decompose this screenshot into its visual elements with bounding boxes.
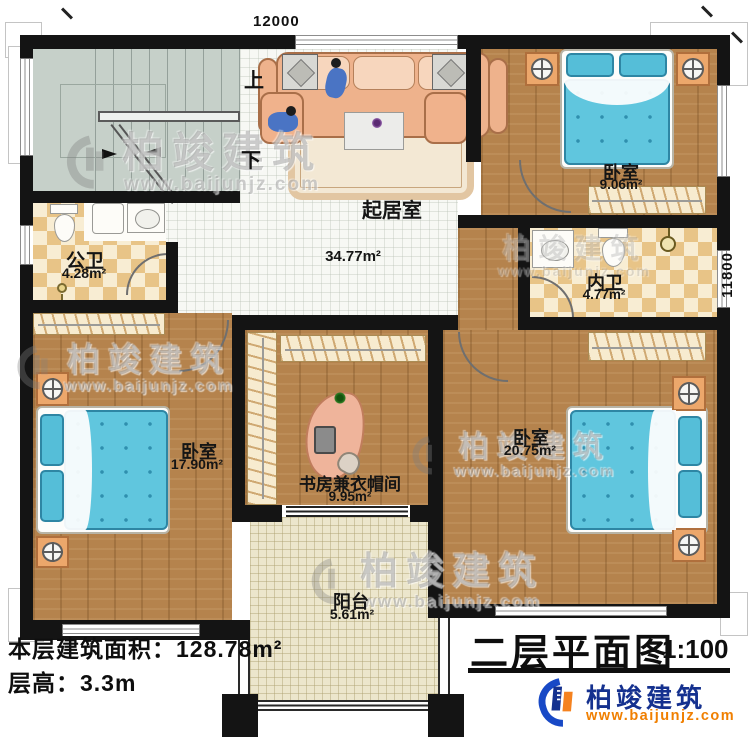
sink-basin bbox=[541, 240, 569, 261]
floor-area-stat: 本层建筑面积：128.78m² bbox=[8, 630, 282, 664]
end-table bbox=[282, 54, 318, 90]
floor-area-label: 本层建筑面积： bbox=[8, 636, 176, 662]
wall bbox=[518, 228, 530, 317]
wall bbox=[166, 242, 178, 304]
wall bbox=[20, 300, 178, 313]
wall bbox=[518, 317, 730, 330]
closet bbox=[588, 332, 706, 361]
lamp-icon bbox=[42, 542, 63, 562]
title-underline bbox=[468, 668, 730, 673]
drawing-scale: 1:100 bbox=[662, 634, 729, 665]
bed-pillow bbox=[619, 53, 667, 77]
stairs-down-label: 下 bbox=[241, 144, 261, 173]
lamp-icon bbox=[678, 382, 700, 405]
window bbox=[20, 225, 33, 265]
window bbox=[717, 85, 730, 177]
window bbox=[295, 35, 458, 49]
sink-basin bbox=[135, 209, 160, 229]
stairs-up-label: 上 bbox=[244, 64, 264, 93]
dimension-right: 11800 bbox=[719, 252, 736, 298]
nightstand bbox=[672, 528, 706, 562]
room-area-study: 9.95m² bbox=[329, 489, 372, 504]
computer-monitor bbox=[314, 426, 336, 454]
shower-head bbox=[660, 236, 676, 252]
room-area-living: 34.77m² bbox=[325, 248, 381, 265]
wall bbox=[232, 315, 458, 330]
lamp-icon bbox=[42, 378, 63, 400]
toilet-tank bbox=[598, 228, 628, 238]
room-area-ensuite-bath: 4.77m² bbox=[583, 287, 626, 302]
stair-direction-arrow bbox=[146, 147, 161, 157]
bed-pillow bbox=[678, 416, 702, 466]
person-figure bbox=[331, 58, 341, 68]
room-area-bedroom-sw: 17.90m² bbox=[171, 456, 223, 472]
nightstand bbox=[676, 52, 710, 86]
nightstand bbox=[525, 52, 559, 86]
lamp-icon bbox=[531, 58, 553, 80]
floor-drain bbox=[57, 283, 67, 293]
dimension-top: 12000 bbox=[253, 13, 300, 30]
closet bbox=[280, 335, 426, 362]
closet bbox=[33, 313, 165, 335]
bed-pillow bbox=[566, 53, 614, 77]
lamp-icon bbox=[678, 534, 700, 556]
sink-counter bbox=[532, 230, 574, 268]
lamp-icon bbox=[682, 58, 704, 80]
wall bbox=[428, 330, 443, 604]
room-area-bedroom-ne: 9.06m² bbox=[600, 177, 643, 192]
wall bbox=[232, 315, 245, 522]
floorplan-page: { "plan": { "dimensions": { "top": "1200… bbox=[0, 0, 750, 741]
room-label-living: 起居室 bbox=[362, 194, 422, 223]
closet bbox=[247, 332, 277, 505]
pen-tick bbox=[61, 7, 73, 19]
wall bbox=[232, 505, 282, 522]
stair-handrail bbox=[98, 111, 240, 122]
floor-height-stat: 层高：3.3m bbox=[8, 664, 136, 698]
nightstand bbox=[672, 376, 706, 411]
balcony-railing bbox=[238, 700, 450, 711]
nightstand bbox=[36, 372, 69, 406]
bed-sheet-fold bbox=[648, 410, 676, 530]
toilet-tank bbox=[50, 204, 78, 214]
end-table-top bbox=[287, 59, 315, 87]
floor-area-value: 128.78m² bbox=[176, 636, 282, 662]
balcony-post bbox=[428, 694, 464, 737]
nightstand bbox=[36, 536, 69, 568]
floor-height-value: 3.3m bbox=[80, 670, 136, 696]
balcony-sliding-door bbox=[286, 506, 408, 517]
balcony-post bbox=[222, 694, 258, 737]
brand-logo-icon bbox=[534, 676, 580, 728]
wall bbox=[458, 215, 717, 228]
room-area-public-bath: 4.28m² bbox=[62, 265, 106, 281]
room-area-bedroom-se: 20.75m² bbox=[504, 442, 556, 458]
shower-hose bbox=[668, 228, 670, 237]
bed-sheet-fold bbox=[64, 410, 92, 530]
person-figure bbox=[286, 106, 296, 116]
wall bbox=[20, 191, 240, 203]
room-area-balcony: 5.61m² bbox=[330, 606, 374, 622]
window bbox=[20, 58, 33, 156]
sink-counter bbox=[127, 203, 165, 233]
armchair bbox=[424, 92, 468, 144]
sofa-armrest bbox=[488, 58, 508, 134]
plant-icon bbox=[334, 392, 346, 404]
end-table bbox=[432, 54, 468, 90]
end-table-top bbox=[437, 59, 465, 87]
bed-pillow bbox=[40, 414, 64, 466]
wall bbox=[466, 35, 481, 162]
pen-tick bbox=[701, 5, 713, 17]
sofa-cushion bbox=[353, 56, 415, 90]
bed-pillow bbox=[40, 470, 64, 522]
bed-pillow bbox=[678, 470, 702, 518]
floor-height-label: 层高： bbox=[8, 670, 80, 696]
window bbox=[495, 606, 667, 616]
stair-direction-arrow bbox=[102, 149, 117, 159]
table-decor bbox=[372, 118, 382, 128]
brand-url: www.baijunjz.com bbox=[586, 708, 735, 724]
washing-machine bbox=[92, 203, 124, 234]
corridor-floor bbox=[458, 228, 518, 330]
